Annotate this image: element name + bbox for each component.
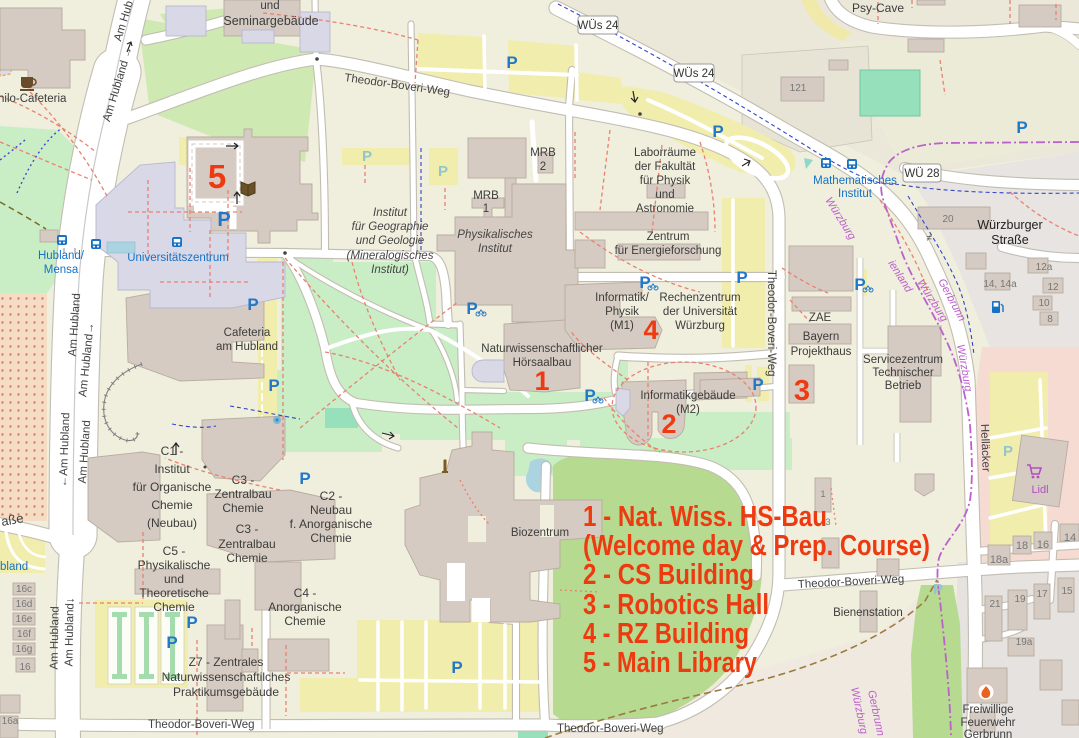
svg-text:3 - Robotics Hall: 3 - Robotics Hall xyxy=(583,589,769,621)
svg-text:17: 17 xyxy=(1036,589,1048,600)
svg-text:20: 20 xyxy=(942,214,954,225)
svg-text:und Geologie: und Geologie xyxy=(356,235,424,247)
svg-text:Straße: Straße xyxy=(991,233,1029,247)
svg-text:3: 3 xyxy=(794,375,810,407)
svg-text:16: 16 xyxy=(1037,539,1049,551)
svg-text:16d: 16d xyxy=(16,599,33,610)
svg-text:Theodor-Boveri-Weg: Theodor-Boveri-Weg xyxy=(557,723,664,735)
svg-text:5: 5 xyxy=(208,158,226,195)
svg-text:Institut): Institut) xyxy=(371,264,409,276)
svg-text:und: und xyxy=(260,0,279,12)
svg-text:Praktikumsgebäude: Praktikumsgebäude xyxy=(173,685,279,699)
svg-text:Würzburger: Würzburger xyxy=(977,218,1042,232)
svg-text:Mathematisches: Mathematisches xyxy=(813,175,897,187)
svg-text:C5 -: C5 - xyxy=(163,544,186,558)
svg-text:P: P xyxy=(736,268,747,287)
svg-text:der Fakultät: der Fakultät xyxy=(635,161,697,173)
svg-text:f. Anorganische: f. Anorganische xyxy=(290,517,373,531)
svg-text:Neubau: Neubau xyxy=(310,503,352,517)
svg-text:und: und xyxy=(164,572,184,586)
svg-text:C3 -: C3 - xyxy=(232,473,255,487)
svg-text:(Neubau): (Neubau) xyxy=(147,516,197,530)
svg-text:P: P xyxy=(247,295,258,314)
svg-text:P: P xyxy=(712,122,723,141)
svg-text:(Welcome day & Prep. Course): (Welcome day & Prep. Course) xyxy=(583,530,930,562)
svg-text:16a: 16a xyxy=(2,716,19,727)
svg-text:Physikalische: Physikalische xyxy=(138,558,211,572)
svg-text:19: 19 xyxy=(1014,594,1026,605)
svg-text:Projekthaus: Projekthaus xyxy=(791,346,852,358)
svg-text:Bayern: Bayern xyxy=(803,331,839,343)
svg-text:16c: 16c xyxy=(16,584,32,595)
svg-text:bland: bland xyxy=(0,561,28,573)
svg-text:16f: 16f xyxy=(17,629,31,640)
svg-text:Freiwillige: Freiwillige xyxy=(962,704,1013,716)
svg-text:Würzburg: Würzburg xyxy=(675,320,725,332)
svg-text:der Universität: der Universität xyxy=(663,306,738,318)
svg-text:für Physik: für Physik xyxy=(640,175,691,187)
svg-text:Informatik/: Informatik/ xyxy=(595,292,649,304)
svg-text:5 - Main Library: 5 - Main Library xyxy=(583,647,757,679)
svg-text:Cafeteria: Cafeteria xyxy=(224,327,271,339)
svg-text:Physikalisches: Physikalisches xyxy=(457,229,533,241)
svg-text:Z7 - Zentrales: Z7 - Zentrales xyxy=(189,655,264,669)
svg-text:Am Hubland↓: Am Hubland↓ xyxy=(63,597,76,666)
svg-text:4: 4 xyxy=(643,315,658,345)
svg-text:Informatikgebäude: Informatikgebäude xyxy=(640,390,735,402)
svg-text:ZAE: ZAE xyxy=(809,312,832,324)
svg-text:P: P xyxy=(933,581,943,598)
svg-text:Am Hubland: Am Hubland xyxy=(48,606,61,669)
svg-text:Institut: Institut xyxy=(154,462,190,476)
svg-text:Hubland/: Hubland/ xyxy=(38,250,85,262)
svg-text:Chemie: Chemie xyxy=(153,600,195,614)
svg-text:Zentralbau: Zentralbau xyxy=(218,537,275,551)
svg-text:C2 -: C2 - xyxy=(320,489,343,503)
svg-text:Zentrum: Zentrum xyxy=(647,231,690,243)
svg-text:≠: ≠ xyxy=(926,233,932,244)
svg-text:Feuerwehr: Feuerwehr xyxy=(961,717,1016,729)
svg-text:2: 2 xyxy=(540,161,546,173)
svg-text:(Mineralogisches: (Mineralogisches xyxy=(347,250,434,262)
svg-text:P: P xyxy=(186,613,197,632)
svg-text:P: P xyxy=(506,53,517,72)
svg-text:P: P xyxy=(268,376,279,395)
svg-text:16e: 16e xyxy=(16,614,33,625)
svg-text:Psy-Cave: Psy-Cave xyxy=(852,1,904,15)
svg-text:Physik: Physik xyxy=(605,306,639,318)
svg-text:Naturwissenschaftlicher: Naturwissenschaftlicher xyxy=(481,343,603,355)
svg-text:Technischer: Technischer xyxy=(872,367,934,379)
svg-text:14: 14 xyxy=(1064,532,1076,544)
svg-text:MRB: MRB xyxy=(530,147,556,159)
svg-text:Chemie: Chemie xyxy=(284,614,326,628)
svg-text:Servicezentrum: Servicezentrum xyxy=(863,354,943,366)
svg-text:(M1): (M1) xyxy=(610,320,634,332)
svg-text:8: 8 xyxy=(1047,314,1053,325)
svg-text:1: 1 xyxy=(534,366,549,396)
svg-text:18: 18 xyxy=(1016,540,1028,552)
svg-text:C1 -: C1 - xyxy=(161,444,184,458)
svg-text:Gerbrunn: Gerbrunn xyxy=(964,729,1013,738)
svg-text:P: P xyxy=(752,375,763,394)
svg-text:Institut: Institut xyxy=(478,243,513,255)
svg-text:Chemie: Chemie xyxy=(222,501,264,515)
svg-text:2: 2 xyxy=(661,409,676,439)
svg-text:P: P xyxy=(299,469,310,488)
svg-text:121: 121 xyxy=(790,83,807,94)
svg-text:für Energieforschung: für Energieforschung xyxy=(615,245,722,257)
svg-text:am Hubland: am Hubland xyxy=(216,341,278,353)
svg-text:16: 16 xyxy=(19,662,31,673)
svg-text:Theoretische: Theoretische xyxy=(139,586,209,600)
svg-text:Zentralbau: Zentralbau xyxy=(214,487,271,501)
svg-text:für Geographie: für Geographie xyxy=(352,221,429,233)
svg-text:WÜs 24: WÜs 24 xyxy=(674,68,716,80)
svg-text:Institut: Institut xyxy=(838,188,873,200)
svg-text:12: 12 xyxy=(1047,282,1059,293)
svg-text:Chemie: Chemie xyxy=(310,531,352,545)
svg-text:WÜs 24: WÜs 24 xyxy=(578,20,620,32)
svg-text:19a: 19a xyxy=(1016,637,1033,648)
svg-text:P: P xyxy=(362,148,372,165)
svg-text:Theodor-Boveri-Weg: Theodor-Boveri-Weg xyxy=(765,270,777,377)
svg-text:Laborräume: Laborräume xyxy=(634,147,696,159)
svg-text:hilo-Cafeteria: hilo-Cafeteria xyxy=(0,93,67,105)
svg-text:Theodor-Boveri-Weg: Theodor-Boveri-Weg xyxy=(148,719,255,731)
svg-text:Naturwissenschaftilches: Naturwissenschaftilches xyxy=(162,670,291,684)
svg-text:1: 1 xyxy=(820,489,825,499)
svg-text:Chemie: Chemie xyxy=(226,551,268,565)
svg-text:21: 21 xyxy=(989,599,1001,610)
svg-text:15: 15 xyxy=(1061,586,1073,597)
svg-text:18a: 18a xyxy=(990,554,1009,566)
svg-text:14, 14a: 14, 14a xyxy=(983,279,1017,290)
svg-text:Bienenstation: Bienenstation xyxy=(833,607,903,619)
svg-text:4 - RZ Building: 4 - RZ Building xyxy=(583,618,749,650)
svg-text:Anorganische: Anorganische xyxy=(268,600,342,614)
svg-text:12a: 12a xyxy=(1036,262,1053,273)
svg-text:(M2): (M2) xyxy=(676,404,700,416)
svg-text:C4 -: C4 - xyxy=(294,586,317,600)
svg-text:Lidl: Lidl xyxy=(1031,484,1048,496)
svg-text:Mensa: Mensa xyxy=(44,264,79,276)
svg-text:1: 1 xyxy=(483,203,489,215)
svg-text:P: P xyxy=(438,163,448,180)
svg-text:MRB: MRB xyxy=(473,190,499,202)
svg-text:Astronomie: Astronomie xyxy=(636,203,694,215)
svg-text:Seminargebäude: Seminargebäude xyxy=(223,14,318,28)
svg-text:und: und xyxy=(655,189,674,201)
svg-text:Universitätszentrum: Universitätszentrum xyxy=(127,252,229,264)
svg-text:P: P xyxy=(1016,118,1027,137)
svg-text:Helläcker: Helläcker xyxy=(978,424,992,472)
svg-text:C3 -: C3 - xyxy=(236,522,259,536)
svg-text:16g: 16g xyxy=(16,644,33,655)
svg-text:P: P xyxy=(451,658,462,677)
svg-text:Institut: Institut xyxy=(373,207,408,219)
svg-text:für Organische: für Organische xyxy=(133,480,212,494)
svg-text:Chemie: Chemie xyxy=(151,498,193,512)
svg-text:Biozentrum: Biozentrum xyxy=(511,527,569,539)
svg-text:P: P xyxy=(217,209,230,231)
svg-text:Betrieb: Betrieb xyxy=(885,380,921,392)
svg-text:P: P xyxy=(1003,443,1013,460)
svg-text:10: 10 xyxy=(1038,298,1050,309)
svg-text:1 - Nat. Wiss. HS-Bau: 1 - Nat. Wiss. HS-Bau xyxy=(583,501,827,533)
svg-text:P: P xyxy=(166,633,177,652)
svg-text:Rechenzentrum: Rechenzentrum xyxy=(659,292,740,304)
svg-text:WÜ 28: WÜ 28 xyxy=(904,168,939,180)
svg-text:2 - CS Building: 2 - CS Building xyxy=(583,559,754,591)
